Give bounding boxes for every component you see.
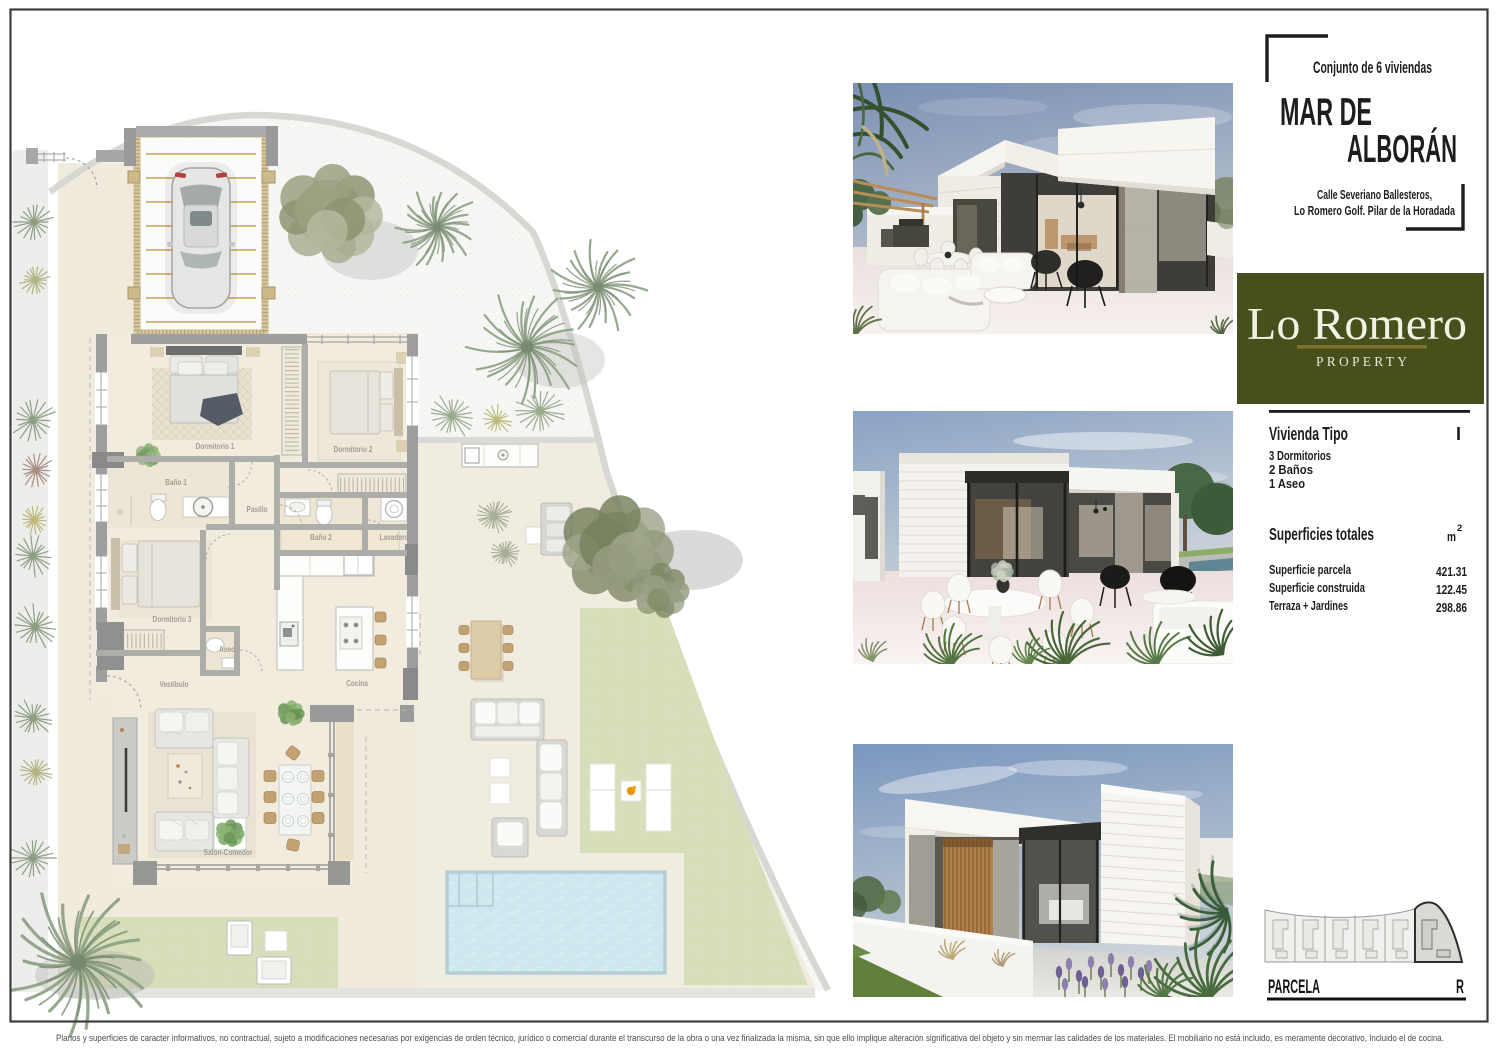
svg-text:I: I <box>1456 423 1461 444</box>
svg-text:Dormitorio 2: Dormitorio 2 <box>334 444 373 454</box>
svg-text:421.31: 421.31 <box>1436 564 1467 579</box>
svg-text:Salón-Comedor: Salón-Comedor <box>204 847 253 857</box>
svg-text:Pasillo: Pasillo <box>246 504 268 514</box>
svg-text:Superficie parcela: Superficie parcela <box>1269 562 1352 577</box>
svg-text:Baño 2: Baño 2 <box>310 532 332 542</box>
svg-text:Superficie construida: Superficie construida <box>1269 580 1366 595</box>
svg-text:2: 2 <box>1457 523 1462 534</box>
svg-text:Dormitorio 1: Dormitorio 1 <box>196 441 235 451</box>
svg-text:122.45: 122.45 <box>1436 582 1467 597</box>
svg-text:Conjunto de 6 viviendas: Conjunto de 6 viviendas <box>1313 58 1432 77</box>
svg-text:Planos y superficies de caract: Planos y superficies de caracter informa… <box>56 1033 1444 1043</box>
svg-text:Baño 1: Baño 1 <box>165 477 187 487</box>
svg-text:m: m <box>1447 530 1456 544</box>
svg-text:Calle Severiano Ballesteros,: Calle Severiano Ballesteros, <box>1317 188 1432 202</box>
svg-text:Lavadero: Lavadero <box>379 532 409 542</box>
svg-text:Terraza + Jardines: Terraza + Jardines <box>1269 598 1348 613</box>
svg-text:Lo Romero Golf. Pilar de la Ho: Lo Romero Golf. Pilar de la Horadada <box>1294 204 1456 218</box>
svg-text:Vivienda Tipo: Vivienda Tipo <box>1269 423 1348 444</box>
svg-text:Cocina: Cocina <box>346 678 369 688</box>
svg-text:298.86: 298.86 <box>1436 600 1467 615</box>
svg-text:ALBORÁN: ALBORÁN <box>1347 127 1457 171</box>
svg-text:3 Dormitorios: 3 Dormitorios <box>1269 449 1331 463</box>
svg-text:1 Aseo: 1 Aseo <box>1269 477 1305 491</box>
svg-text:Vestíbulo: Vestíbulo <box>159 679 189 689</box>
svg-text:Lo Romero: Lo Romero <box>1247 299 1467 349</box>
svg-text:2 Baños: 2 Baños <box>1269 463 1313 477</box>
svg-text:Dormitorio 3: Dormitorio 3 <box>153 614 192 624</box>
svg-text:R: R <box>1456 977 1464 998</box>
svg-text:Superficies totales: Superficies totales <box>1269 524 1374 544</box>
svg-text:PARCELA: PARCELA <box>1268 977 1320 998</box>
svg-text:Aseo: Aseo <box>219 644 235 654</box>
